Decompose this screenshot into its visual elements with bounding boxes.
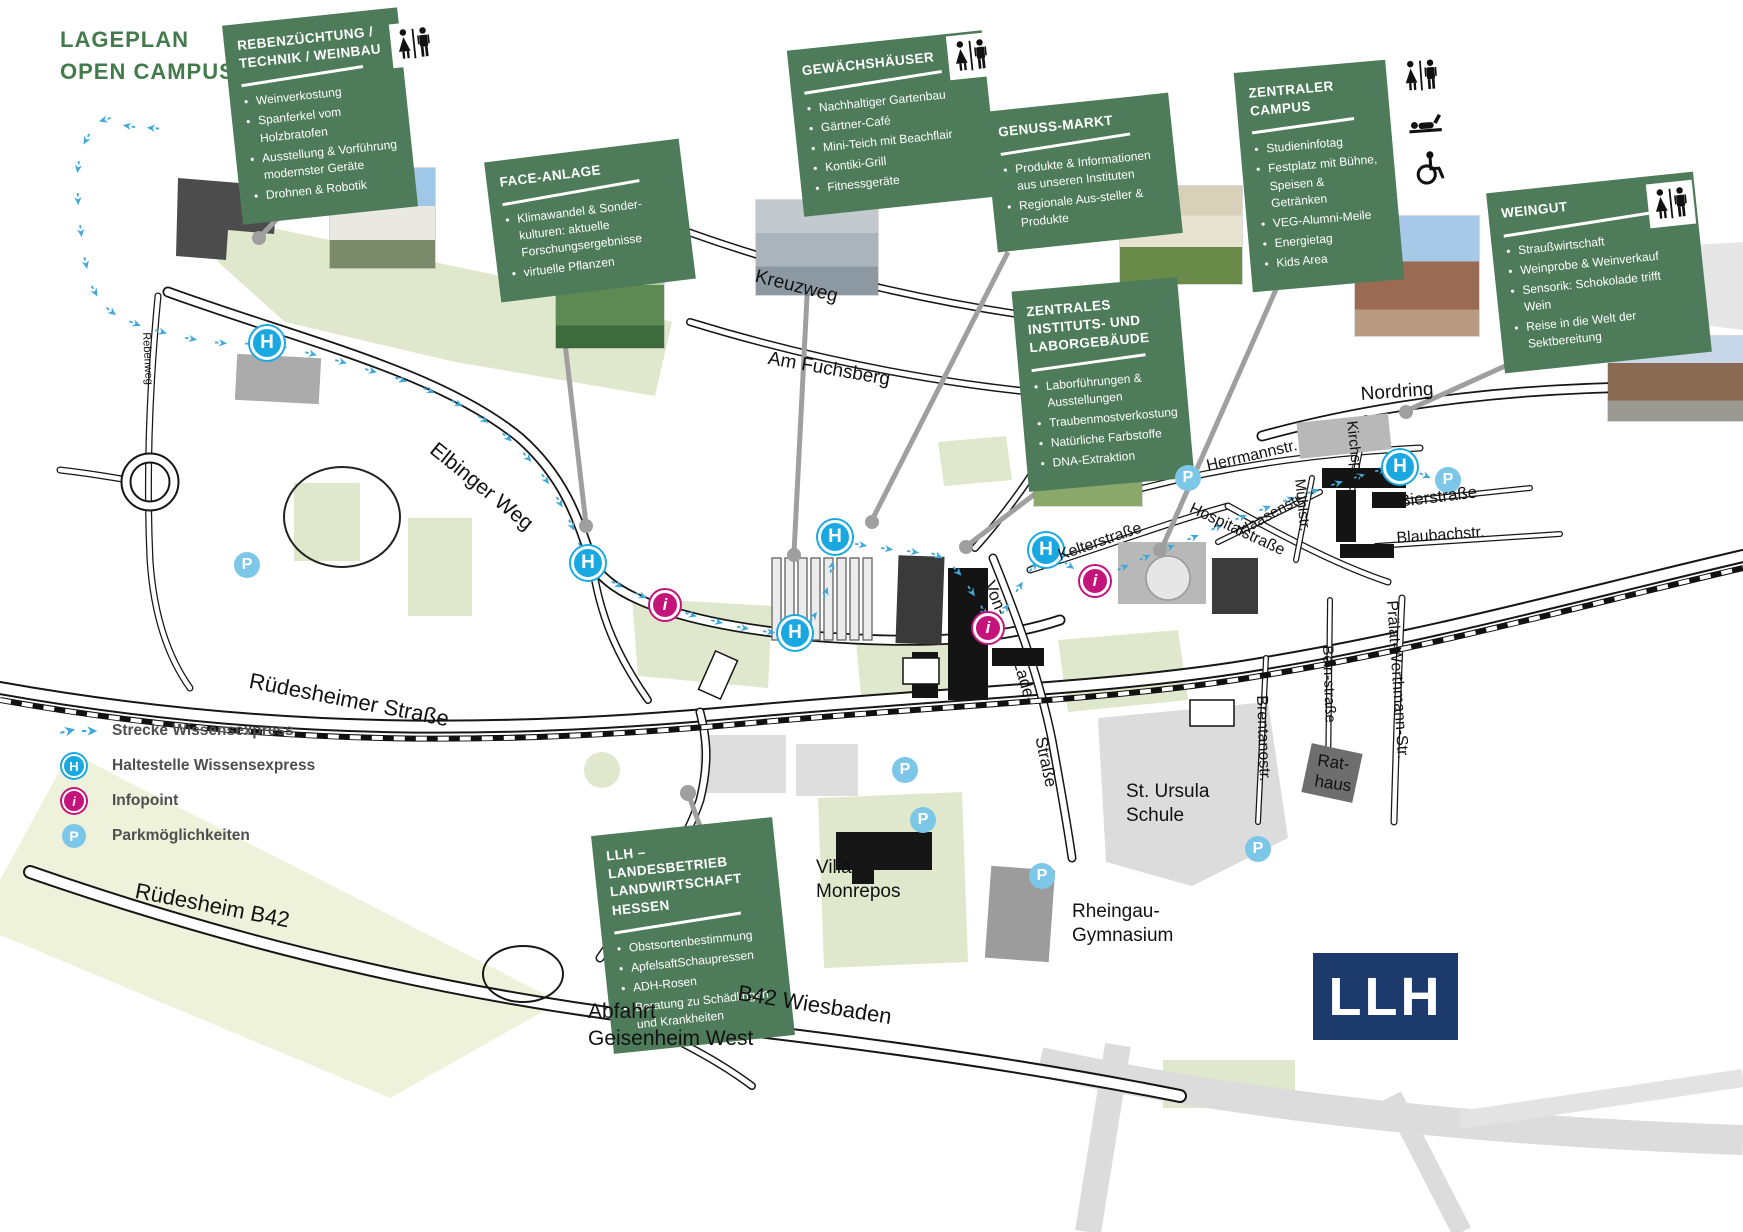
legend-label: Parkmöglichkeiten (112, 827, 250, 845)
page-title-line1: LAGEPLAN (60, 24, 235, 56)
legend-item-infopoint: i Infopoint (60, 788, 315, 814)
parking-letter: P (1253, 840, 1264, 858)
info-box-title: GENUSS-MARKT (997, 107, 1158, 142)
info-box-zentrales-institut: ZENTRALES INSTITUTS- UND LABORGEBÄUDE La… (1012, 277, 1195, 492)
page-title-line2: OPEN CAMPUS (60, 56, 235, 88)
parking-marker: P (1245, 836, 1271, 862)
parking-letter: P (918, 811, 929, 829)
llh-logo: LLH (1313, 953, 1458, 1040)
legend-item-route: Strecke Wissensexpress (60, 718, 315, 744)
place-label-villa-monrepos: Villa Monrepos (816, 856, 901, 904)
street-label-bein-strasse: Bein-straße (1319, 645, 1339, 723)
info-box-rebenzuechtung: REBENZÜCHTUNG / TECHNIK / WEINBAU Weinve… (222, 7, 418, 224)
infopoint-marker: i (973, 613, 1003, 643)
wissensexpress-stop-marker: H (778, 616, 812, 650)
parking-icon: P (62, 824, 86, 848)
wissensexpress-stop-marker: H (571, 546, 605, 580)
infopoint-letter: i (663, 595, 668, 615)
parking-marker: P (1029, 863, 1055, 889)
info-box-bullets: Klimawandel & Sonder-kulturen: aktuelle … (503, 192, 680, 283)
info-box-title: ZENTRALER CAMPUS (1248, 74, 1377, 121)
parking-marker: P (910, 807, 936, 833)
parking-marker: P (892, 757, 918, 783)
info-box-face-anlage: FACE-ANLAGE Klimawandel & Sonder-kulture… (484, 139, 696, 303)
map-legend: Strecke Wissensexpress H Haltestelle Wis… (60, 718, 315, 858)
legend-item-stop: H Haltestelle Wissensexpress (60, 753, 315, 779)
info-box-title: REBENZÜCHTUNG / TECHNIK / WEINBAU (236, 22, 389, 74)
info-box-title: ZENTRALES INSTITUTS- UND LABORGEBÄUDE (1026, 291, 1170, 358)
parking-marker: P (234, 552, 260, 578)
stop-letter: H (788, 622, 802, 644)
stop-letter: H (1039, 539, 1053, 561)
legend-label: Infopoint (112, 792, 178, 810)
info-box-genuss-markt: GENUSS-MARKT Produkte & Informationen au… (983, 93, 1183, 253)
info-box-bullets: StraußwirtschaftWeinprobe & WeinverkaufS… (1504, 225, 1697, 355)
info-box-bullets: WeinverkostungSpanferkel vom Holzbratofe… (242, 79, 403, 205)
stop-letter: H (1393, 456, 1407, 478)
route-arrows-icon (60, 725, 112, 737)
parking-marker: P (1175, 465, 1201, 491)
legend-label: Strecke Wissensexpress (112, 722, 294, 740)
wissensexpress-stop-marker: H (818, 520, 852, 554)
infopoint-marker: i (650, 590, 680, 620)
restroom-icon (1397, 52, 1446, 99)
stop-letter: H (581, 552, 595, 574)
info-box-title: LLH – LANDESBETRIEB LANDWIRTSCHAFT HESSE… (605, 831, 768, 920)
legend-label: Haltestelle Wissensexpress (112, 757, 315, 775)
parking-letter: P (1183, 469, 1194, 487)
restroom-icon (1646, 180, 1696, 229)
place-label-rathaus: Rat- haus (1313, 750, 1355, 797)
info-box-zentraler-campus: ZENTRALER CAMPUS StudieninfotagFestplatz… (1234, 60, 1405, 292)
info-box-bullets: Produkte & Informationen aus unseren Ins… (1002, 146, 1169, 233)
stop-letter: H (828, 526, 842, 548)
parking-letter: P (1037, 867, 1048, 885)
parking-letter: P (242, 556, 253, 574)
wheelchair-icon (1405, 144, 1454, 191)
infopoint-marker: i (1080, 566, 1110, 596)
stop-letter: H (260, 332, 274, 354)
page-title: LAGEPLAN OPEN CAMPUS (60, 24, 235, 88)
stop-icon: H (62, 754, 86, 778)
restroom-icon (946, 32, 996, 81)
infopoint-letter: i (1093, 571, 1098, 591)
wissensexpress-stop-marker: H (1383, 450, 1417, 484)
legend-item-parking: P Parkmöglichkeiten (60, 823, 315, 849)
info-box-bullets: Nachhaltiger GartenbauGärtner-CaféMini-T… (805, 84, 984, 198)
street-label-abfahrt-geisenheim-west: Abfahrt Geisenheim West (588, 998, 753, 1053)
info-box-bullets: StudieninfotagFestplatz mit Bühne, Speis… (1253, 131, 1390, 273)
parking-letter: P (900, 761, 911, 779)
llh-logo-text: LLH (1329, 966, 1443, 1028)
baby-changing-icon (1401, 98, 1450, 145)
divider (1252, 117, 1355, 134)
restroom-icon (389, 20, 439, 69)
infopoint-icon: i (62, 789, 86, 813)
wissensexpress-stop-marker: H (250, 326, 284, 360)
campus-map-page: LAGEPLAN OPEN CAMPUS REBENZÜCHTUNG / TEC… (0, 0, 1743, 1232)
info-bullet: Festplatz mit Bühne, Speisen & Getränken (1255, 151, 1385, 213)
infopoint-letter: i (986, 618, 991, 638)
street-label-brentanostr: Brentanostr. (1252, 695, 1273, 782)
info-box-bullets: Laborführungen & AusstellungenTraubenmos… (1032, 367, 1180, 473)
info-box-title: FACE-ANLAGE (499, 153, 670, 192)
place-label-st-ursula-schule: St. Ursula Schule (1126, 780, 1209, 828)
place-label-rheingau-gymnasium: Rheingau- Gymnasium (1072, 900, 1173, 948)
